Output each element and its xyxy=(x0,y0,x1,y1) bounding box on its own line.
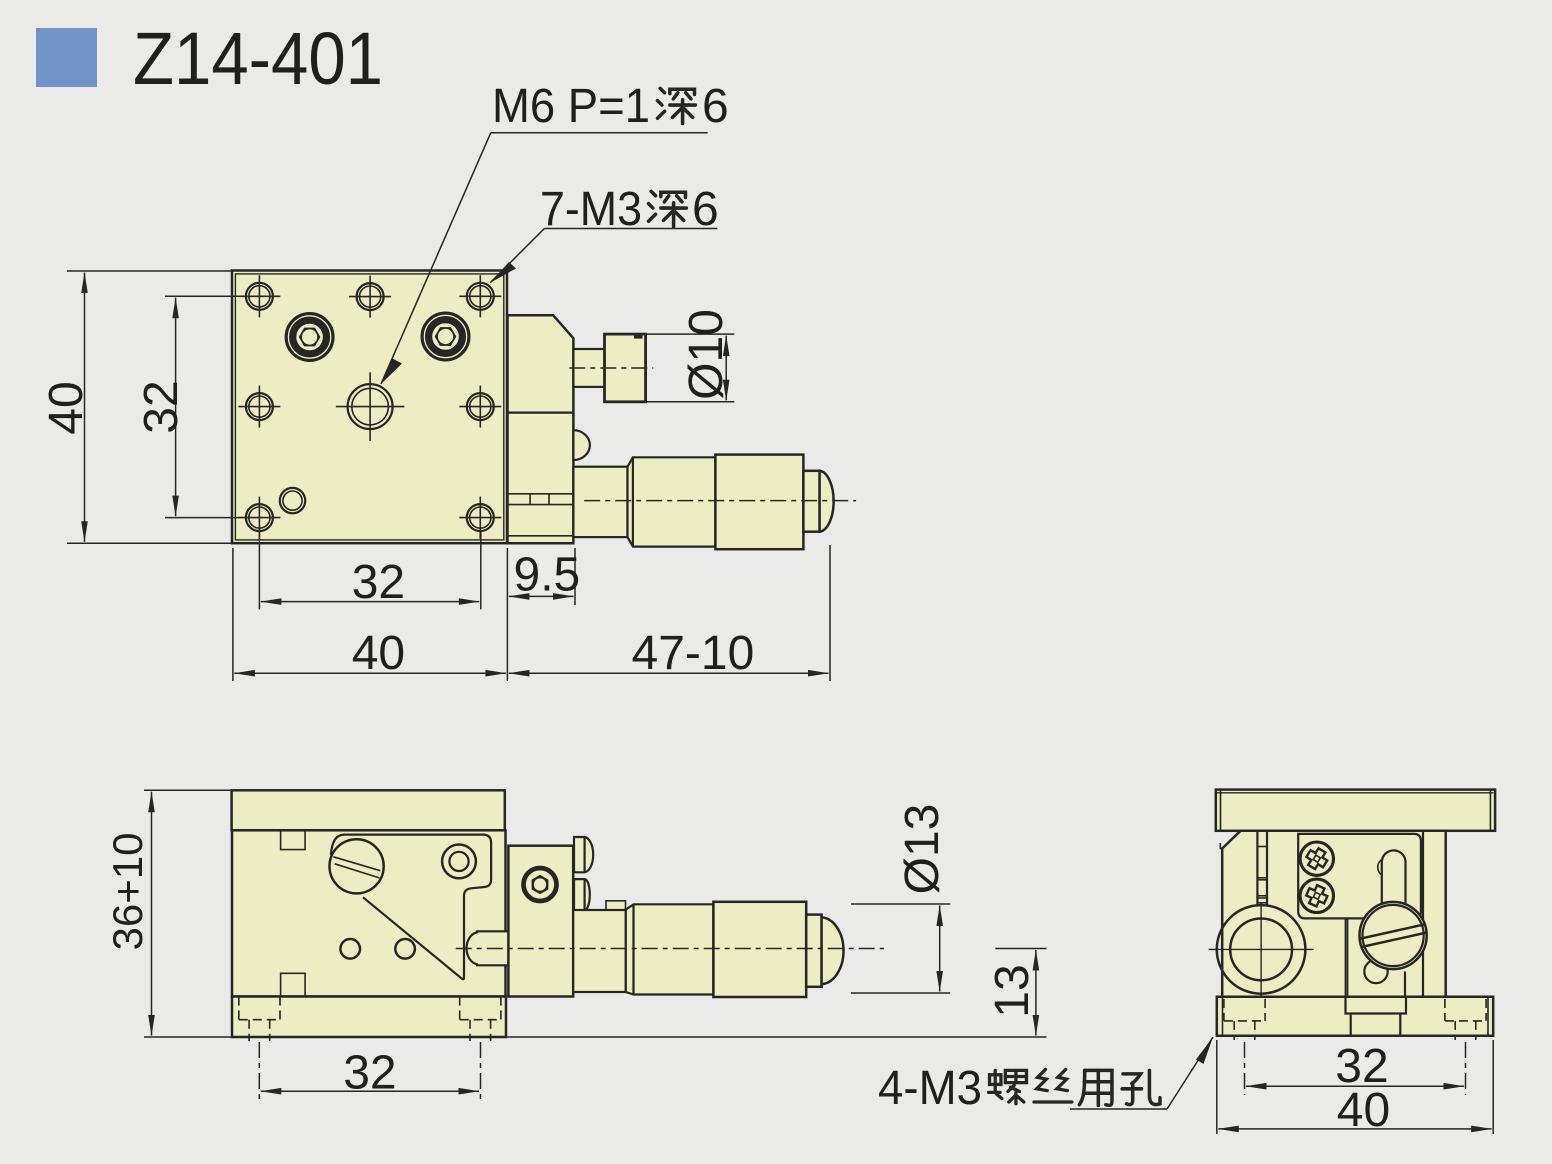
svg-text:Ø13: Ø13 xyxy=(896,804,949,895)
svg-text:6: 6 xyxy=(702,80,729,133)
svg-text:32: 32 xyxy=(135,380,188,433)
svg-text:M6 P=1: M6 P=1 xyxy=(492,80,650,133)
svg-text:4-M3: 4-M3 xyxy=(878,1062,982,1115)
svg-text:32: 32 xyxy=(343,1047,396,1100)
svg-text:40: 40 xyxy=(1337,1084,1390,1137)
svg-text:47-10: 47-10 xyxy=(632,627,755,680)
svg-text:40: 40 xyxy=(40,381,93,434)
svg-text:40: 40 xyxy=(352,627,405,680)
svg-text:9.5: 9.5 xyxy=(514,549,581,602)
svg-text:36+10: 36+10 xyxy=(104,833,151,951)
svg-text:13: 13 xyxy=(986,964,1039,1017)
svg-text:32: 32 xyxy=(352,556,405,609)
svg-text:Z14-401: Z14-401 xyxy=(133,17,383,100)
svg-text:Ø10: Ø10 xyxy=(680,309,733,400)
